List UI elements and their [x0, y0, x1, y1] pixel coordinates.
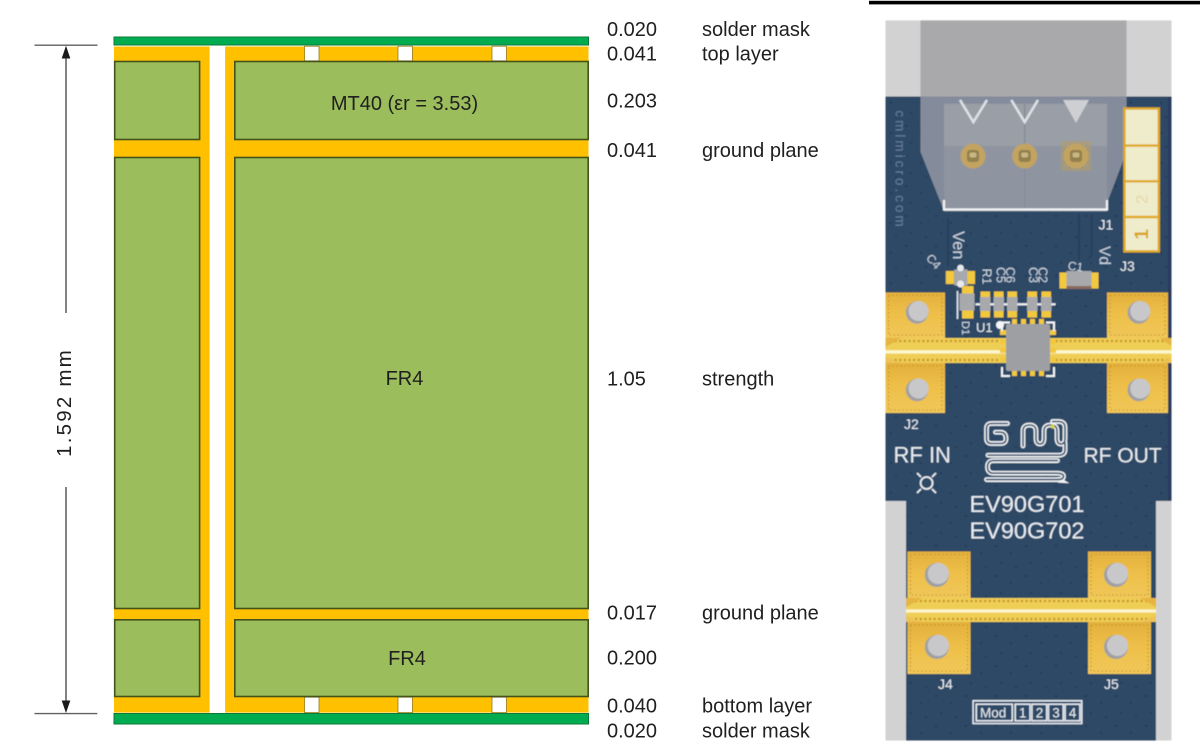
svg-text:0.041: 0.041	[607, 140, 657, 162]
svg-text:0.040: 0.040	[607, 696, 657, 718]
svg-text:0.041: 0.041	[607, 44, 657, 66]
svg-text:J2: J2	[904, 416, 919, 432]
svg-text:FR4: FR4	[388, 648, 426, 670]
svg-text:0.203: 0.203	[607, 91, 657, 113]
svg-text:MT40 (εr = 3.53): MT40 (εr = 3.53)	[331, 93, 478, 115]
svg-text:RF OUT: RF OUT	[1084, 445, 1162, 468]
svg-text:cmlmicro.com: cmlmicro.com	[893, 110, 908, 229]
svg-text:4: 4	[1069, 706, 1077, 721]
svg-text:C1: C1	[1067, 259, 1084, 275]
svg-text:3: 3	[1052, 706, 1060, 721]
svg-text:0.020: 0.020	[607, 720, 657, 742]
svg-text:U1: U1	[976, 320, 993, 335]
svg-text:1: 1	[1019, 706, 1027, 721]
svg-text:1.05: 1.05	[607, 368, 646, 390]
svg-text:top layer: top layer	[702, 44, 779, 66]
svg-text:Ven: Ven	[949, 231, 967, 259]
svg-text:RF IN: RF IN	[894, 443, 951, 468]
svg-text:bottom layer: bottom layer	[702, 696, 812, 718]
svg-text:FR4: FR4	[386, 368, 424, 390]
svg-text:Vd: Vd	[1096, 246, 1113, 265]
svg-text:ground plane: ground plane	[702, 602, 819, 624]
svg-text:J4: J4	[938, 676, 953, 692]
svg-text:0.017: 0.017	[607, 602, 657, 624]
svg-text:strength: strength	[702, 368, 774, 390]
svg-text:C6: C6	[1003, 267, 1017, 283]
svg-text:0.020: 0.020	[607, 19, 657, 41]
svg-text:1: 1	[1132, 228, 1153, 239]
svg-text:1.592 mm: 1.592 mm	[53, 348, 76, 457]
svg-text:C2: C2	[1036, 267, 1050, 283]
svg-text:solder mask: solder mask	[702, 720, 811, 742]
svg-text:R1: R1	[980, 269, 994, 285]
svg-text:J3: J3	[1120, 258, 1135, 274]
svg-text:2: 2	[1036, 706, 1044, 721]
svg-text:0.200: 0.200	[607, 648, 657, 670]
svg-text:Mod: Mod	[980, 706, 1006, 721]
svg-text:2: 2	[1133, 194, 1152, 203]
svg-text:EV90G701: EV90G701	[970, 491, 1085, 517]
svg-text:ground plane: ground plane	[702, 140, 819, 162]
svg-text:D1: D1	[959, 321, 971, 335]
svg-text:solder mask: solder mask	[702, 19, 811, 41]
svg-text:EV90G702: EV90G702	[970, 518, 1085, 544]
svg-text:J5: J5	[1104, 676, 1119, 692]
svg-text:J1: J1	[1099, 217, 1114, 233]
